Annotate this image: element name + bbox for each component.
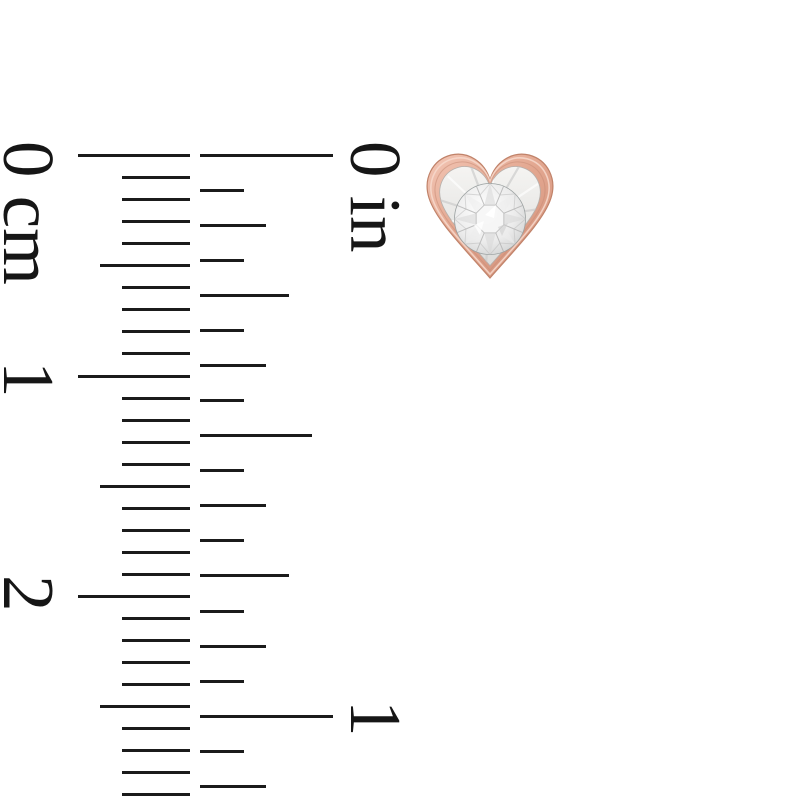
inch-tick bbox=[200, 189, 244, 192]
cm-tick bbox=[122, 727, 190, 730]
cm-tick bbox=[78, 595, 190, 598]
cm-tick bbox=[122, 220, 190, 223]
cm-tick bbox=[100, 705, 190, 708]
cm-tick bbox=[122, 661, 190, 664]
inch-tick bbox=[200, 329, 244, 332]
cm-tick bbox=[122, 639, 190, 642]
cm-tick bbox=[78, 154, 190, 157]
inch-tick bbox=[200, 504, 266, 507]
cm-tick bbox=[122, 573, 190, 576]
cm-tick bbox=[122, 286, 190, 289]
cm-tick bbox=[78, 375, 190, 378]
earring-photo bbox=[424, 148, 556, 284]
ruler-label-cm-2: 2 bbox=[0, 575, 65, 612]
cm-tick bbox=[122, 529, 190, 532]
inch-tick bbox=[200, 364, 266, 367]
inch-tick bbox=[200, 750, 244, 753]
inch-tick bbox=[200, 259, 244, 262]
cm-tick bbox=[122, 308, 190, 311]
cm-tick bbox=[122, 551, 190, 554]
ruler-label-in-1: 1 bbox=[339, 700, 412, 737]
cm-tick bbox=[122, 397, 190, 400]
inch-tick bbox=[200, 574, 289, 577]
inch-tick bbox=[200, 434, 312, 437]
inch-tick bbox=[200, 645, 266, 648]
cm-tick bbox=[122, 330, 190, 333]
cm-tick bbox=[122, 419, 190, 422]
inch-tick bbox=[200, 539, 244, 542]
inch-tick bbox=[200, 610, 244, 613]
cm-tick bbox=[122, 352, 190, 355]
cm-tick bbox=[100, 485, 190, 488]
cm-tick bbox=[122, 771, 190, 774]
cm-tick bbox=[122, 242, 190, 245]
inch-tick bbox=[200, 715, 333, 718]
inch-tick bbox=[200, 154, 333, 157]
inch-tick bbox=[200, 469, 244, 472]
cm-tick bbox=[100, 264, 190, 267]
inch-tick bbox=[200, 785, 266, 788]
cm-tick bbox=[122, 441, 190, 444]
cm-tick bbox=[122, 176, 190, 179]
inch-tick bbox=[200, 294, 289, 297]
diamond-stone bbox=[455, 184, 526, 255]
cm-tick bbox=[122, 683, 190, 686]
cm-tick bbox=[122, 198, 190, 201]
inch-tick bbox=[200, 224, 266, 227]
cm-tick bbox=[122, 617, 190, 620]
inch-tick bbox=[200, 399, 244, 402]
inch-tick bbox=[200, 680, 244, 683]
ruler-label-cm-1: 1 bbox=[0, 361, 65, 398]
size-guide-image: 0 cm120 in1 bbox=[0, 0, 800, 800]
ruler-label-cm-0-cm: 0 cm bbox=[0, 141, 65, 285]
cm-tick bbox=[122, 507, 190, 510]
cm-tick bbox=[122, 463, 190, 466]
ruler-label-in-0-in: 0 in bbox=[339, 141, 412, 253]
cm-tick bbox=[122, 749, 190, 752]
cm-tick bbox=[122, 793, 190, 796]
